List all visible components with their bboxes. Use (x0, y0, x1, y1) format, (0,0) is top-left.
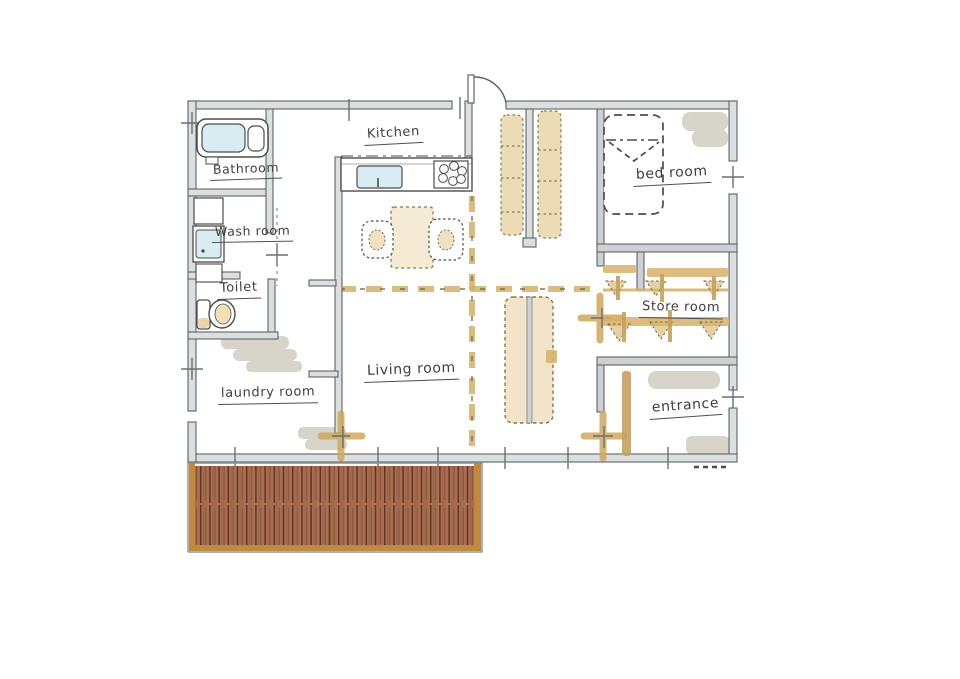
shoe-cabinet (622, 371, 631, 456)
wood-deck (188, 462, 482, 552)
room-label-living: Living room (364, 360, 460, 383)
kitchen-sink (357, 166, 402, 188)
sliding-door-unit (505, 297, 557, 423)
room-label-store: Store room (639, 299, 723, 319)
stove (434, 161, 468, 188)
toilet-fixture (197, 300, 235, 329)
room-label-bathroom: Bathroom (210, 159, 283, 181)
room-label-bedroom: bed room (632, 163, 711, 187)
bathtub (197, 119, 268, 164)
kitchen-counter (341, 156, 472, 191)
room-label-washroom: Wash room (212, 223, 294, 243)
floor-plan-canvas: Kitchen Bathroom Wash room Toilet laundr… (0, 0, 960, 679)
floor-plan-drawing (0, 0, 960, 679)
entry-door (468, 75, 506, 103)
room-label-toilet: Toilet (217, 279, 261, 300)
room-label-laundry: laundry room (218, 384, 319, 405)
dining-table (391, 207, 433, 268)
dining-set (362, 207, 463, 268)
room-label-kitchen: Kitchen (364, 124, 424, 146)
bed (604, 115, 663, 214)
